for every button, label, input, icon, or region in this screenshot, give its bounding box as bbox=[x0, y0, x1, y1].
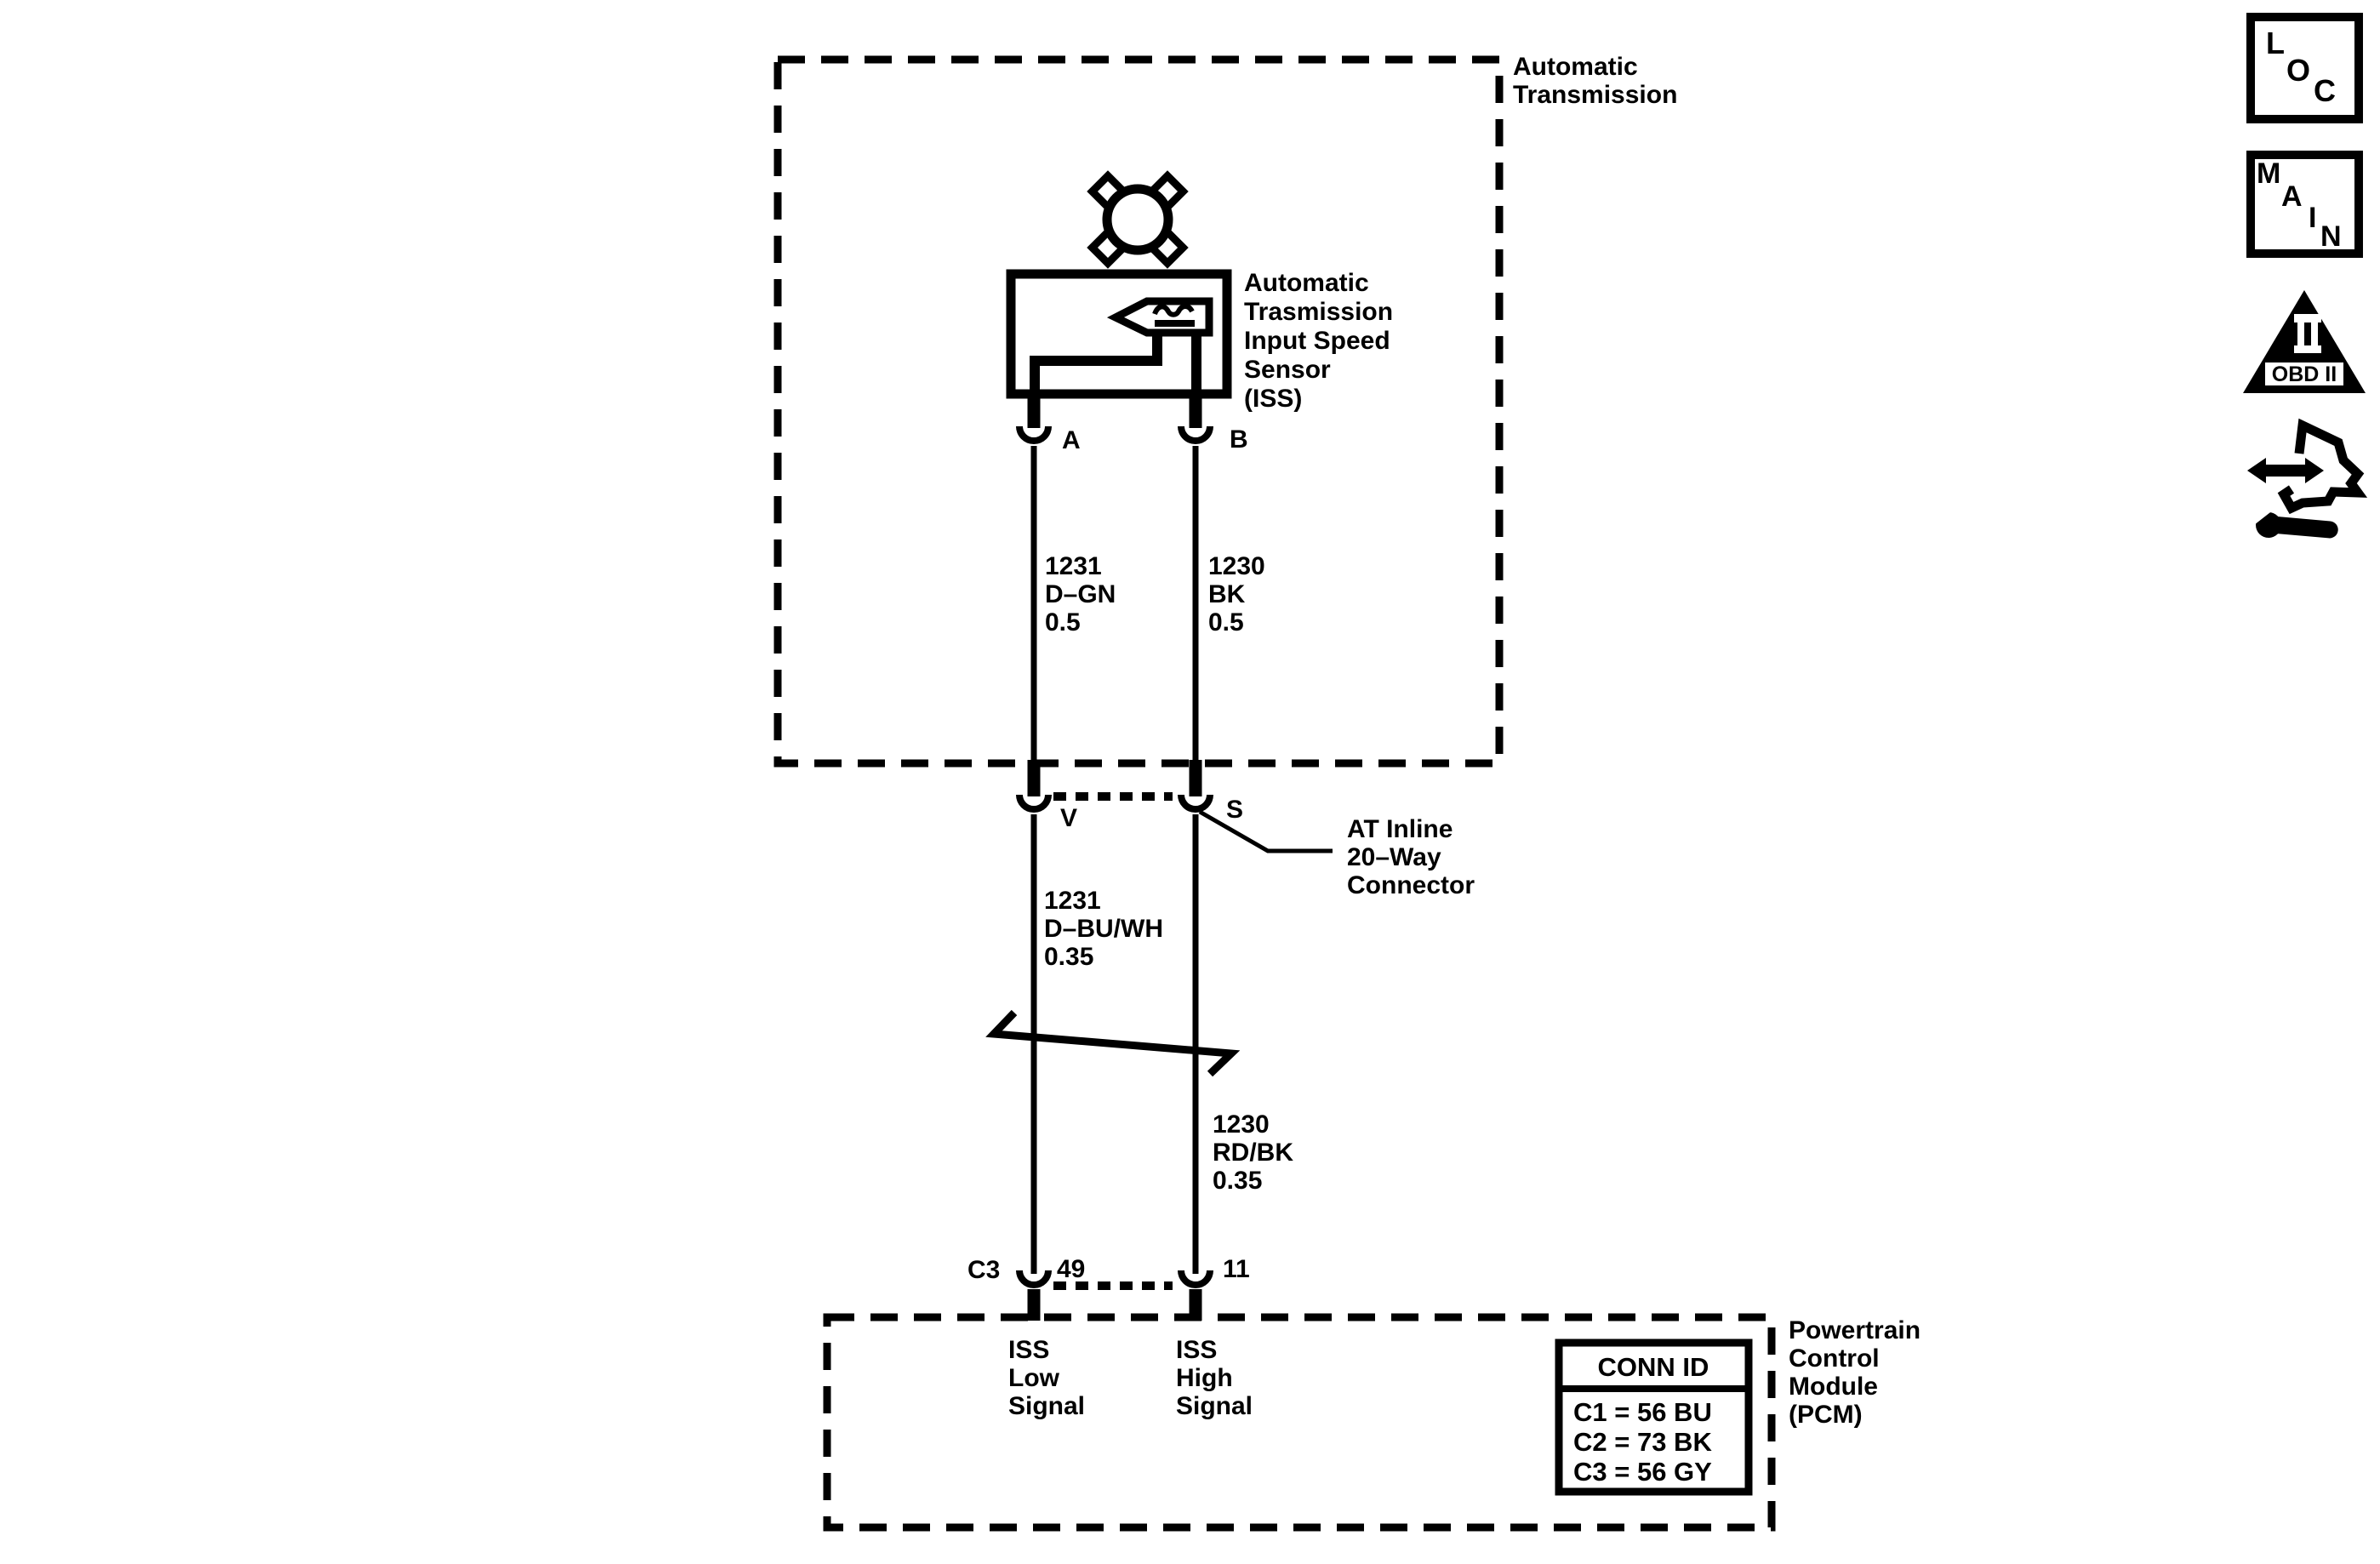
iss-sensor-label: Automatic Trasmission Input Speed Sensor… bbox=[1244, 269, 1393, 413]
svg-text:D–GN: D–GN bbox=[1045, 580, 1116, 608]
svg-text:Automatic: Automatic bbox=[1244, 269, 1369, 297]
svg-text:L: L bbox=[2266, 26, 2285, 60]
connector-c3-label: C3 bbox=[967, 1256, 1000, 1284]
wire-label-1231-dbuwh: 1231 D–BU/WH 0.35 bbox=[1044, 887, 1163, 971]
svg-text:1230: 1230 bbox=[1213, 1110, 1270, 1139]
speed-sensor-element-icon bbox=[1116, 301, 1209, 333]
svg-text:0.5: 0.5 bbox=[1208, 608, 1244, 636]
transmission-box-label: Transmission bbox=[1513, 81, 1677, 109]
transmission-box-label: Automatic bbox=[1513, 53, 1638, 81]
obd-ii-label: OBD II bbox=[2272, 362, 2337, 386]
double-arrow-icon bbox=[2247, 458, 2324, 483]
sensor-rotor-icon bbox=[1093, 176, 1184, 264]
conn-id-header: CONN ID bbox=[1598, 1352, 1709, 1382]
wire-label-1231-dgn: 1231 D–GN 0.5 bbox=[1045, 552, 1116, 636]
svg-text:I: I bbox=[2309, 202, 2316, 234]
svg-text:1231: 1231 bbox=[1044, 887, 1101, 915]
svg-text:(PCM): (PCM) bbox=[1789, 1401, 1863, 1429]
pin-a-label: A bbox=[1062, 426, 1081, 454]
svg-text:(ISS): (ISS) bbox=[1244, 385, 1302, 413]
svg-text:N: N bbox=[2320, 220, 2342, 253]
wire-label-1230-bk: 1230 BK 0.5 bbox=[1208, 552, 1265, 636]
main-icon[interactable]: M A I N bbox=[2251, 155, 2359, 254]
conn-id-row: C2 = 73 BK bbox=[1573, 1427, 1712, 1457]
svg-text:Signal: Signal bbox=[1008, 1392, 1085, 1420]
conn-id-row: C1 = 56 BU bbox=[1573, 1397, 1712, 1427]
inline-connector-label: AT Inline 20–Way Connector bbox=[1347, 815, 1475, 899]
automatic-transmission-box bbox=[778, 60, 1499, 763]
svg-text:Input Speed: Input Speed bbox=[1244, 327, 1390, 355]
svg-text:Low: Low bbox=[1008, 1364, 1060, 1392]
svg-text:O: O bbox=[2286, 53, 2310, 88]
svg-text:Powertrain: Powertrain bbox=[1789, 1316, 1921, 1344]
svg-text:Module: Module bbox=[1789, 1373, 1878, 1401]
svg-text:0.35: 0.35 bbox=[1044, 943, 1093, 971]
conn-id-table: CONN ID C1 = 56 BU C2 = 73 BK C3 = 56 GY bbox=[1559, 1343, 1749, 1492]
svg-text:RD/BK: RD/BK bbox=[1213, 1139, 1293, 1167]
wiring-diagram-page: Automatic Transmission Automatic Trasmis… bbox=[0, 0, 2380, 1564]
svg-text:ISS: ISS bbox=[1176, 1336, 1217, 1364]
svg-text:ISS: ISS bbox=[1008, 1336, 1049, 1364]
svg-text:20–Way: 20–Way bbox=[1347, 843, 1441, 871]
inline-connector-leader-line bbox=[1200, 812, 1333, 851]
svg-text:D–BU/WH: D–BU/WH bbox=[1044, 915, 1163, 943]
connector-repair-icon[interactable] bbox=[2246, 425, 2358, 539]
svg-text:Sensor: Sensor bbox=[1244, 356, 1331, 384]
svg-text:0.35: 0.35 bbox=[1213, 1167, 1262, 1195]
svg-text:Connector: Connector bbox=[1347, 871, 1475, 899]
loc-icon[interactable]: L O C bbox=[2251, 17, 2359, 119]
svg-text:C: C bbox=[2314, 73, 2336, 108]
pin-49-label: 49 bbox=[1057, 1255, 1085, 1283]
svg-text:M: M bbox=[2257, 157, 2280, 190]
pin-v-label: V bbox=[1060, 804, 1077, 832]
inline-terminal-v-cup-icon bbox=[1019, 795, 1048, 809]
svg-text:High: High bbox=[1176, 1364, 1233, 1392]
terminal-b-cup-icon bbox=[1181, 426, 1210, 441]
svg-text:1230: 1230 bbox=[1208, 552, 1265, 580]
pin-b-label: B bbox=[1230, 425, 1248, 454]
iss-high-signal-label: ISS High Signal bbox=[1176, 1336, 1253, 1420]
svg-text:0.5: 0.5 bbox=[1045, 608, 1081, 636]
pin-11-label: 11 bbox=[1223, 1255, 1250, 1283]
iss-low-signal-label: ISS Low Signal bbox=[1008, 1336, 1085, 1420]
inline-terminal-s-cup-icon bbox=[1181, 795, 1210, 809]
pin-s-label: S bbox=[1226, 796, 1243, 824]
svg-text:Trasmission: Trasmission bbox=[1244, 298, 1393, 326]
svg-text:AT Inline: AT Inline bbox=[1347, 815, 1453, 843]
conn-id-row: C3 = 56 GY bbox=[1573, 1457, 1712, 1487]
svg-text:BK: BK bbox=[1208, 580, 1246, 608]
svg-text:A: A bbox=[2281, 180, 2303, 213]
svg-text:1231: 1231 bbox=[1045, 552, 1102, 580]
obd-ii-icon[interactable]: OBD II bbox=[2243, 290, 2366, 393]
pcm-box-label: Powertrain Control Module (PCM) bbox=[1789, 1316, 1921, 1429]
svg-text:Control: Control bbox=[1789, 1344, 1880, 1373]
svg-text:Signal: Signal bbox=[1176, 1392, 1253, 1420]
terminal-a-cup-icon bbox=[1019, 426, 1048, 441]
wire-label-1230-rdbk: 1230 RD/BK 0.35 bbox=[1213, 1110, 1293, 1195]
